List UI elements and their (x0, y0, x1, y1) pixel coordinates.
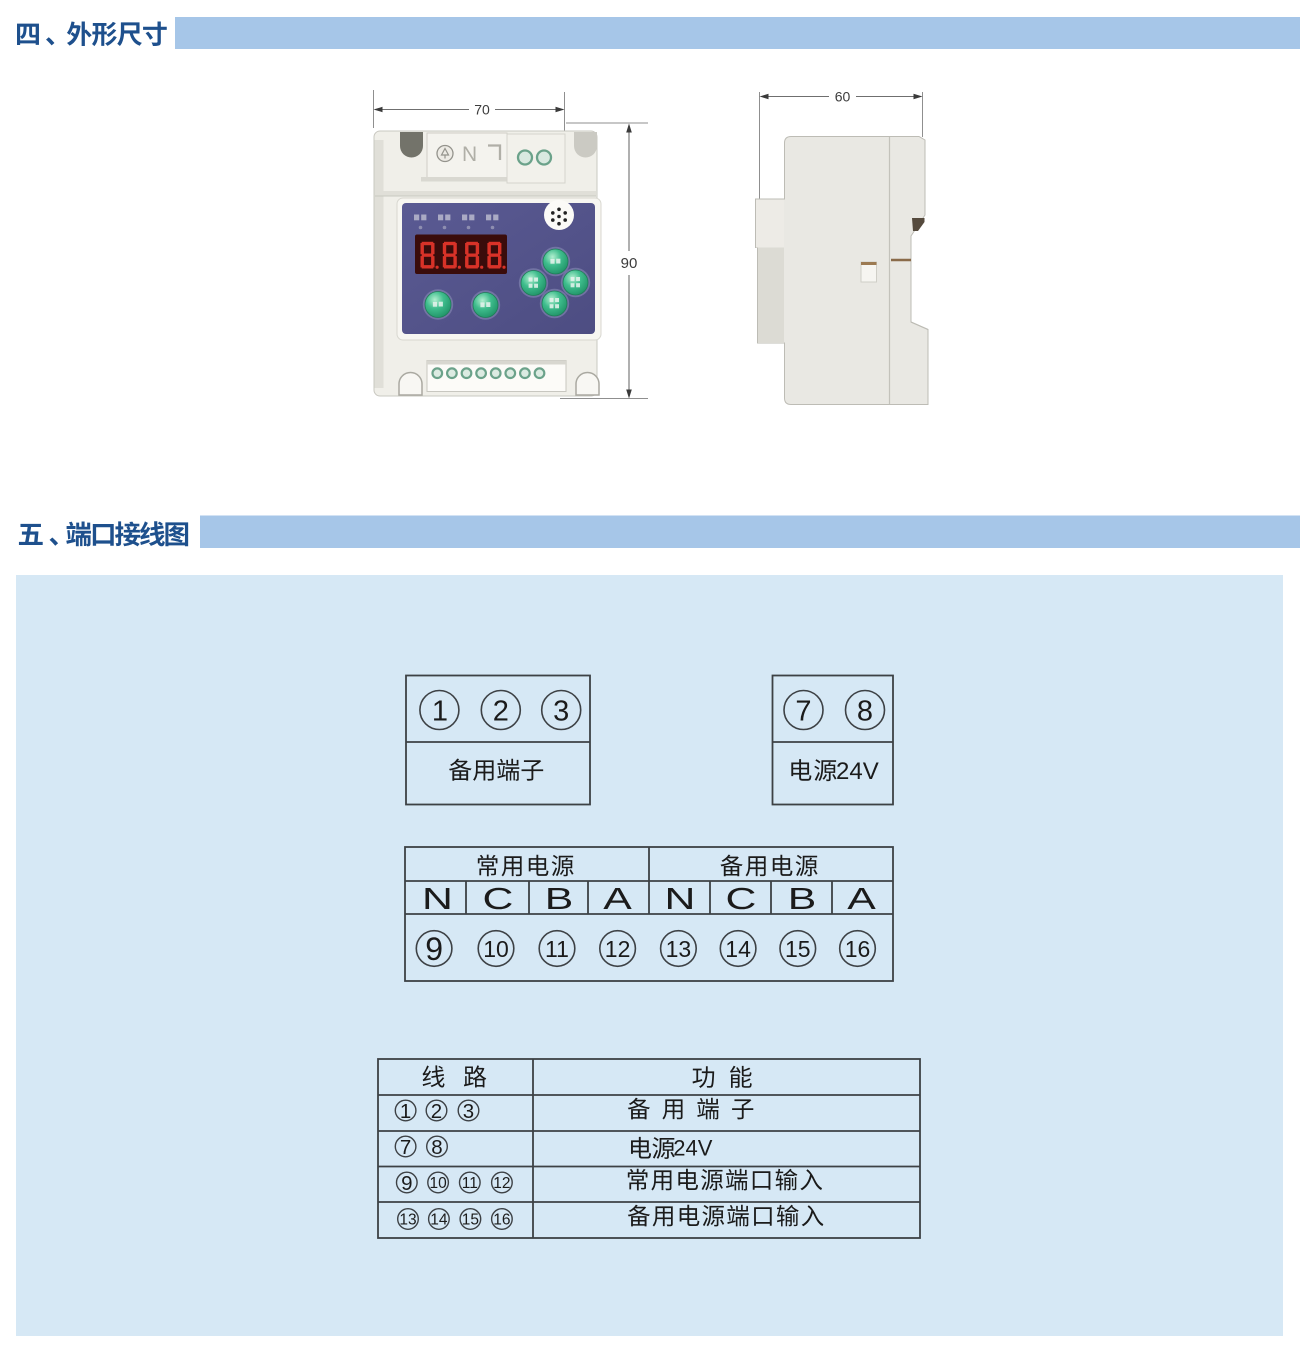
svg-text:11: 11 (545, 936, 569, 962)
svg-text:C: C (726, 881, 757, 916)
svg-text:12: 12 (605, 936, 631, 962)
svg-text:B: B (788, 881, 817, 916)
svg-text:1: 1 (400, 1100, 411, 1123)
svg-text:8: 8 (857, 696, 873, 728)
svg-text:N: N (665, 881, 696, 916)
svg-text:16: 16 (845, 936, 871, 962)
svg-text:70: 70 (474, 102, 490, 118)
svg-text:15: 15 (785, 936, 811, 962)
svg-text:10: 10 (483, 936, 509, 962)
svg-text:16: 16 (493, 1212, 510, 1229)
svg-text:2: 2 (493, 696, 509, 728)
svg-text:24V: 24V (836, 758, 879, 785)
svg-text:9: 9 (401, 1172, 412, 1195)
svg-text:7: 7 (400, 1136, 411, 1159)
svg-text:N: N (422, 881, 453, 916)
svg-text:9: 9 (425, 931, 443, 967)
svg-text:A: A (603, 881, 632, 916)
svg-text:15: 15 (462, 1212, 479, 1229)
svg-text:11: 11 (462, 1175, 478, 1192)
svg-text:60: 60 (835, 89, 851, 105)
svg-text:24V: 24V (673, 1136, 712, 1161)
svg-text:7: 7 (795, 696, 811, 728)
svg-text:13: 13 (399, 1212, 416, 1229)
svg-text:3: 3 (553, 696, 569, 728)
svg-text:C: C (483, 881, 514, 916)
svg-text:3: 3 (463, 1100, 474, 1123)
svg-text:B: B (545, 881, 574, 916)
svg-text:1: 1 (432, 696, 448, 728)
svg-text:14: 14 (725, 936, 751, 962)
svg-text:A: A (847, 881, 876, 916)
svg-text:14: 14 (430, 1212, 448, 1229)
svg-text:12: 12 (493, 1175, 510, 1192)
svg-text:13: 13 (666, 936, 692, 962)
svg-text:8: 8 (431, 1136, 442, 1159)
svg-text:90: 90 (621, 255, 638, 272)
svg-text:2: 2 (431, 1100, 442, 1123)
svg-text:N: N (462, 143, 477, 166)
svg-text:10: 10 (429, 1175, 447, 1192)
